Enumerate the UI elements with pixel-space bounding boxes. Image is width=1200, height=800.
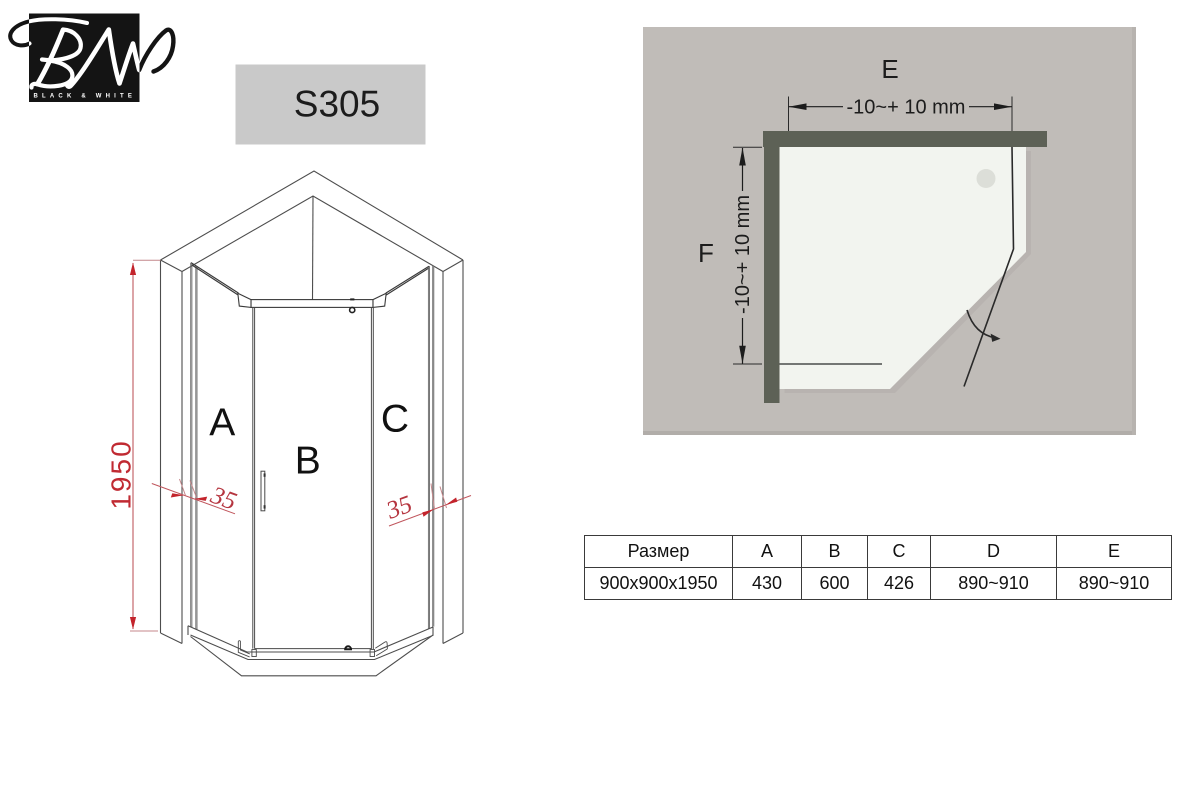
svg-text:-10~+ 10 mm: -10~+ 10 mm <box>732 195 754 314</box>
svg-text:S305: S305 <box>294 84 380 125</box>
svg-text:-10~+ 10 mm: -10~+ 10 mm <box>847 97 966 119</box>
svg-text:35: 35 <box>382 491 416 525</box>
svg-text:1950: 1950 <box>105 439 136 509</box>
svg-text:BLACK & WHITE: BLACK & WHITE <box>34 94 137 100</box>
svg-text:F: F <box>698 238 714 268</box>
svg-text:35: 35 <box>206 481 240 515</box>
svg-text:E: E <box>881 54 898 84</box>
svg-text:C: C <box>381 398 409 441</box>
svg-text:A: A <box>209 402 235 445</box>
svg-text:B: B <box>295 440 321 483</box>
